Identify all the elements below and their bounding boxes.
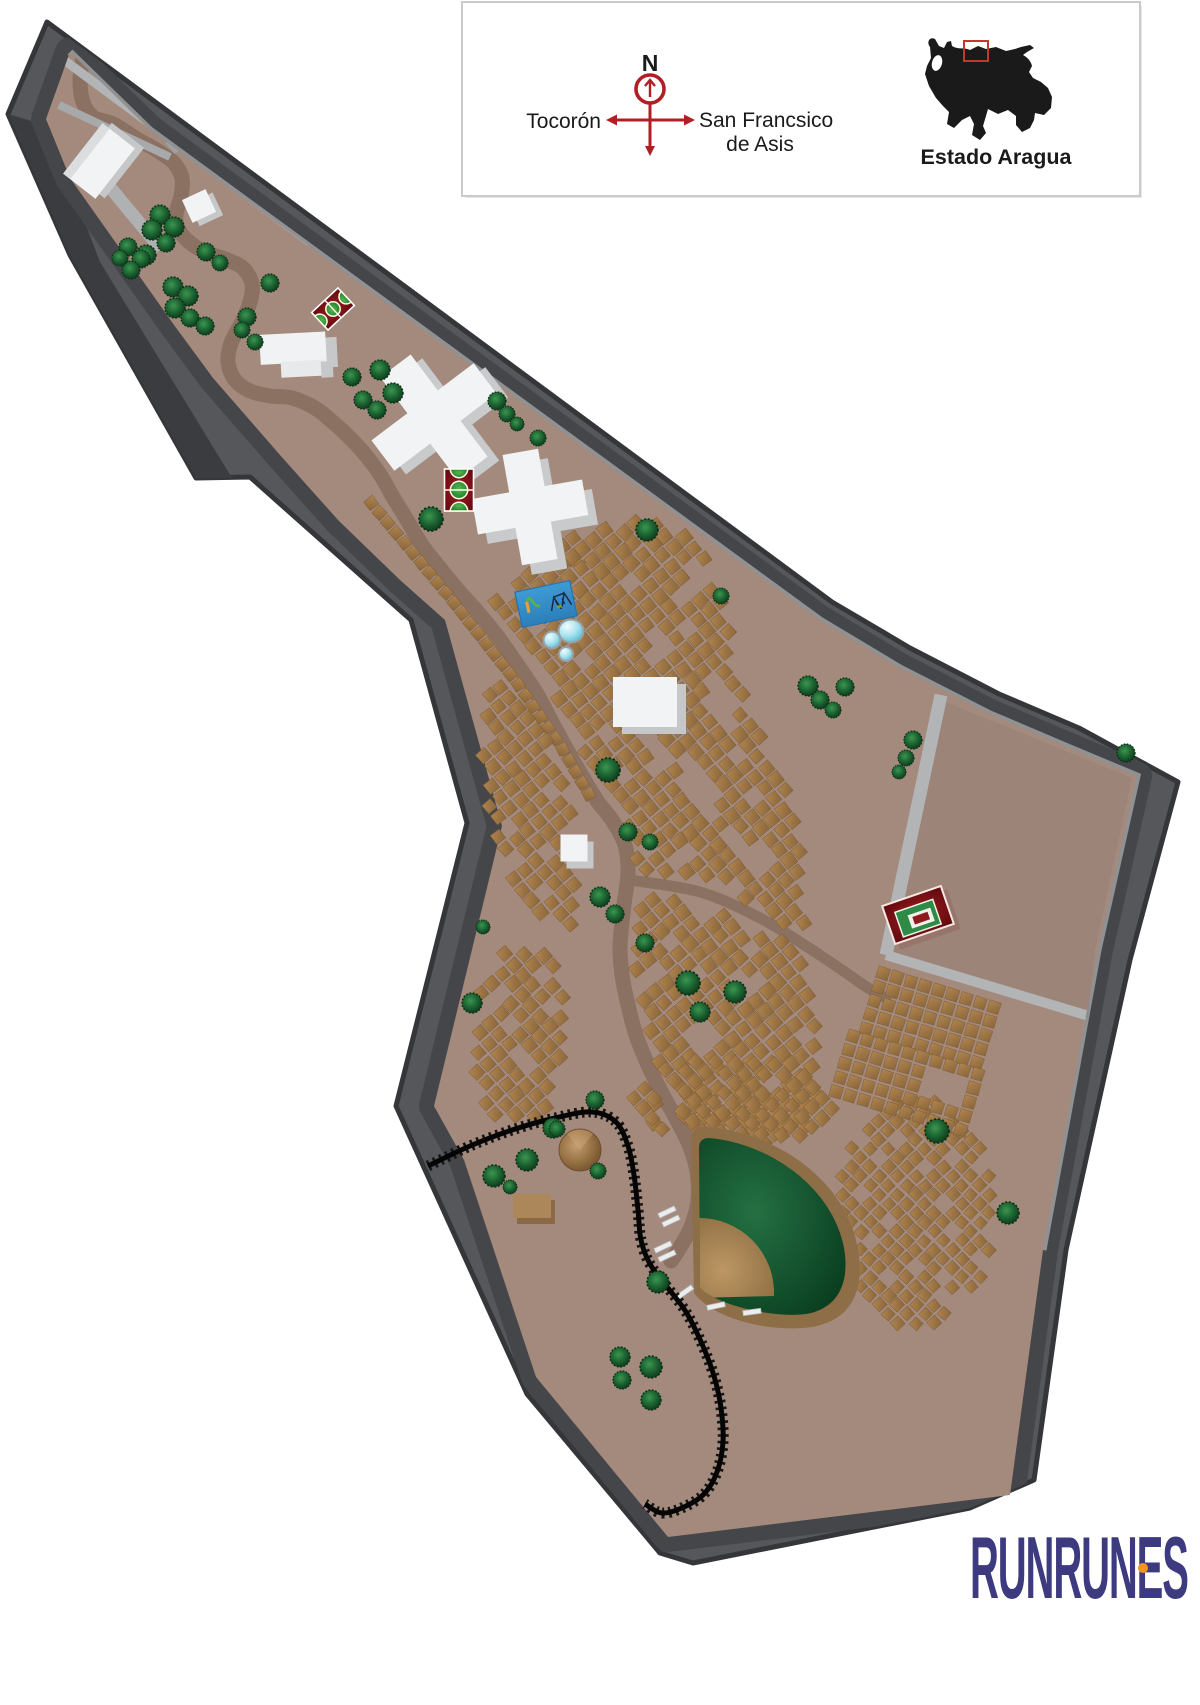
svg-text:San Francsico: San Francsico	[699, 109, 833, 132]
svg-text:RUNRUNES: RUNRUNES	[970, 1519, 1188, 1617]
svg-text:Tocorón: Tocorón	[526, 110, 601, 133]
svg-text:N: N	[642, 50, 659, 76]
svg-text:Estado Aragua: Estado Aragua	[921, 145, 1073, 169]
svg-text:de Asis: de Asis	[726, 133, 794, 156]
